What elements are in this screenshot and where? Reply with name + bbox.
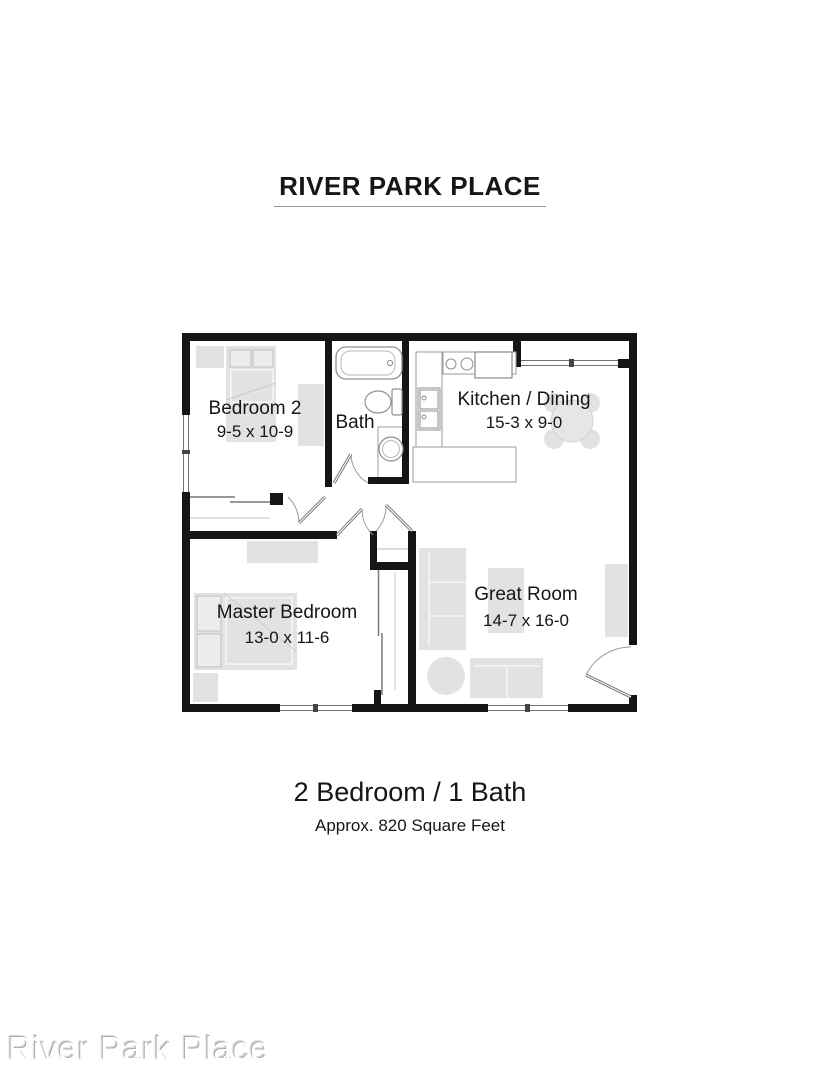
tv-console xyxy=(605,564,628,637)
room-label-master: Master Bedroom xyxy=(217,602,357,623)
sofa xyxy=(419,548,466,650)
toilet-bowl xyxy=(365,391,391,413)
wall-bottom-1 xyxy=(182,704,280,712)
door-bath xyxy=(334,454,368,483)
window-bedroom2 xyxy=(182,415,190,492)
room-dims-master: 13-0 x 11-6 xyxy=(245,628,330,647)
loveseat xyxy=(470,658,543,698)
door-leaf-core xyxy=(586,675,631,697)
wall-bottom-3 xyxy=(568,704,637,712)
stove xyxy=(443,352,475,374)
unit-summary: 2 Bedroom / 1 Bath xyxy=(0,777,820,808)
wall-left-upper xyxy=(182,333,190,415)
room-label-bath: Bath xyxy=(335,412,374,433)
window-mullion xyxy=(182,450,190,454)
sofa-body xyxy=(419,548,466,650)
wall-greatroom-west xyxy=(408,531,416,712)
room-label-kitchen-dining: Kitchen / Dining xyxy=(457,389,590,410)
door-swing-arc xyxy=(586,647,631,675)
door-entry xyxy=(586,647,631,697)
room-dims-greatroom: 14-7 x 16-0 xyxy=(483,611,569,630)
door-hall-closet xyxy=(376,505,412,531)
vanity xyxy=(378,427,403,477)
peninsula-counter xyxy=(413,447,516,482)
floorplan-drawing: Bedroom 2 9-5 x 10-9 Bath Kitchen / Dini… xyxy=(0,0,820,1080)
room-label-bedroom2: Bedroom 2 xyxy=(209,398,302,419)
wall-dining-window-post xyxy=(618,359,629,368)
door-master xyxy=(337,509,373,535)
window-mullion xyxy=(569,359,574,367)
wall-master-north xyxy=(182,531,337,539)
wall-bath-east xyxy=(402,341,409,484)
refrigerator xyxy=(475,352,512,378)
toilet-tank xyxy=(392,389,402,415)
wall-closet-post xyxy=(270,493,283,505)
window-master xyxy=(280,704,352,712)
wall-bath-west xyxy=(325,341,332,487)
wall-left-lower xyxy=(182,492,190,712)
accent-chair xyxy=(427,657,465,695)
pillow xyxy=(197,634,221,667)
door-swing-arc xyxy=(376,505,386,531)
room-dims-bedroom2: 9-5 x 10-9 xyxy=(217,422,294,441)
wall-bath-south xyxy=(368,477,409,484)
dresser xyxy=(247,541,318,563)
window-mullion xyxy=(313,704,318,712)
door-leaf-core xyxy=(386,505,412,531)
watermark: River Park Place xyxy=(8,1030,270,1068)
door-leaf-core xyxy=(299,497,325,523)
door-bedroom2 xyxy=(288,497,325,523)
window-greatroom xyxy=(488,704,568,712)
wall-master-closet-post xyxy=(374,690,381,704)
nightstand xyxy=(193,673,218,702)
pillow xyxy=(253,350,273,367)
nightstand xyxy=(196,346,224,368)
unit-square-feet: Approx. 820 Square Feet xyxy=(0,816,820,836)
door-swing-arc xyxy=(288,497,299,523)
wall-right-upper xyxy=(629,341,637,645)
kitchen-sink xyxy=(418,388,440,430)
dresser xyxy=(298,384,324,446)
room-label-greatroom: Great Room xyxy=(474,584,577,605)
wall-top xyxy=(182,333,637,341)
bathtub xyxy=(336,347,402,379)
door-leaf-core xyxy=(334,454,351,483)
window-dining xyxy=(521,359,618,367)
wall-bottom-2 xyxy=(352,704,488,712)
door-leaf-core xyxy=(337,509,362,535)
window-mullion xyxy=(525,704,530,712)
pillow xyxy=(230,350,251,367)
room-dims-kitchen-dining: 15-3 x 9-0 xyxy=(486,413,563,432)
door-swing-arc xyxy=(351,454,368,483)
